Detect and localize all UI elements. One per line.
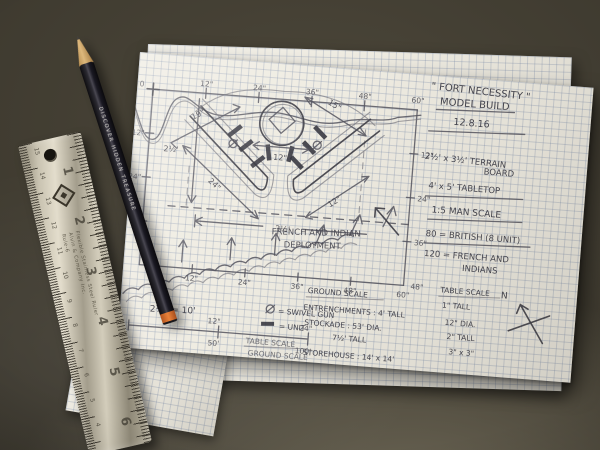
top-tick-label: 36" (306, 87, 320, 97)
ruler-cm-number: 13 (44, 197, 53, 206)
legend-unit-label: = UNIT (279, 322, 307, 333)
measure-label: 24" (206, 176, 222, 192)
note-french-line1: 120 = FRENCH AND (424, 249, 510, 266)
ruler-cm-number: 5 (88, 398, 96, 403)
ruler-inch-number: 2 (71, 215, 88, 227)
top-tick-label: 12" (200, 79, 214, 89)
ruler-hang-hole (43, 148, 59, 164)
bottom-tick-label: 60" (396, 290, 410, 300)
scale-bar-mid-top: 12" (207, 316, 221, 326)
ruler-diamond-logo (52, 184, 75, 207)
ruler-cm-number: 8 (71, 323, 79, 328)
note-french-line2: INDIANS (462, 264, 498, 277)
measure-label: 12" (273, 153, 288, 163)
scale-bar-mid-bottom: 50' (207, 338, 219, 348)
compass-n-label: N (501, 291, 508, 301)
main-sketch-sheet: 0 12" 24" 36" 48" 60" 12" 24" 12" 24" 36… (117, 52, 594, 383)
compass-north-arrow: N (498, 291, 552, 344)
origin-label: 0 (139, 79, 145, 88)
stockade-circle (258, 100, 305, 147)
ruler-cm-number: 4 (94, 422, 102, 427)
size-row-stockade: STOCKADE : 53' DIA. (304, 318, 382, 333)
ruler-cm-number: 14 (38, 171, 47, 180)
ruler-cm-number: 9 (65, 298, 73, 303)
storehouse-diamond (268, 106, 296, 134)
bottom-tick-label: 12" (185, 273, 199, 283)
note-man-scale: 1:5 MAN SCALE (431, 205, 502, 220)
size-value-tall: 2" TALL (446, 332, 476, 343)
note-board-line2: BOARD (483, 167, 515, 179)
size-table-sub: 1" TALL (442, 300, 472, 311)
ruler-cm-number: 12 (49, 221, 58, 230)
top-tick-label: 60" (411, 95, 425, 105)
top-tick-label: 48" (358, 91, 372, 101)
fort-necessity-sketch: 0 12" 24" 36" 48" 60" 12" 24" 12" 24" 36… (117, 52, 594, 383)
measure-label: 2½' (163, 144, 179, 154)
right-tick-label: 48" (410, 282, 424, 292)
ruler-inch-number: 1 (59, 165, 76, 177)
notes-column: " FORT NECESSITY " MODEL BUILD 12.8.16 2… (416, 81, 543, 279)
size-row-stockade-height: 7½' TALL (332, 333, 367, 345)
legend-unit-symbol (261, 322, 274, 326)
size-row-storehouse: STOREHOUSE : 14' x 14' (303, 348, 395, 364)
ruler-cm-number: 15 (32, 147, 41, 156)
size-value-3x3: 3" x 3" (448, 347, 474, 358)
bottom-tick-label: 24" (237, 277, 251, 287)
top-tick-label: 24" (253, 83, 267, 93)
measure-label: 15" (326, 98, 343, 113)
measure-label: 12" (326, 194, 343, 209)
deployment-line2: DEPLOYMENT (283, 240, 341, 252)
bottom-tick-label: 36" (290, 282, 304, 292)
size-value-dia: 12" DIA. (444, 318, 475, 329)
ruler-cm-number: 6 (82, 372, 90, 377)
note-tabletop: 4' x 5' TABLETOP (428, 181, 500, 197)
note-date: 12.8.16 (453, 117, 490, 131)
deployment-line1: FRENCH AND INDIAN (272, 227, 361, 239)
plan-frame (133, 83, 422, 290)
ruler-cm-number: 7 (77, 348, 85, 353)
measurement-arrows: 19" 15" 12" 24" 12" 2½' 3½' (158, 85, 377, 240)
photo-scene: IT APP ENTRENCHMENTS 4" TALL 0 12" (0, 0, 600, 450)
